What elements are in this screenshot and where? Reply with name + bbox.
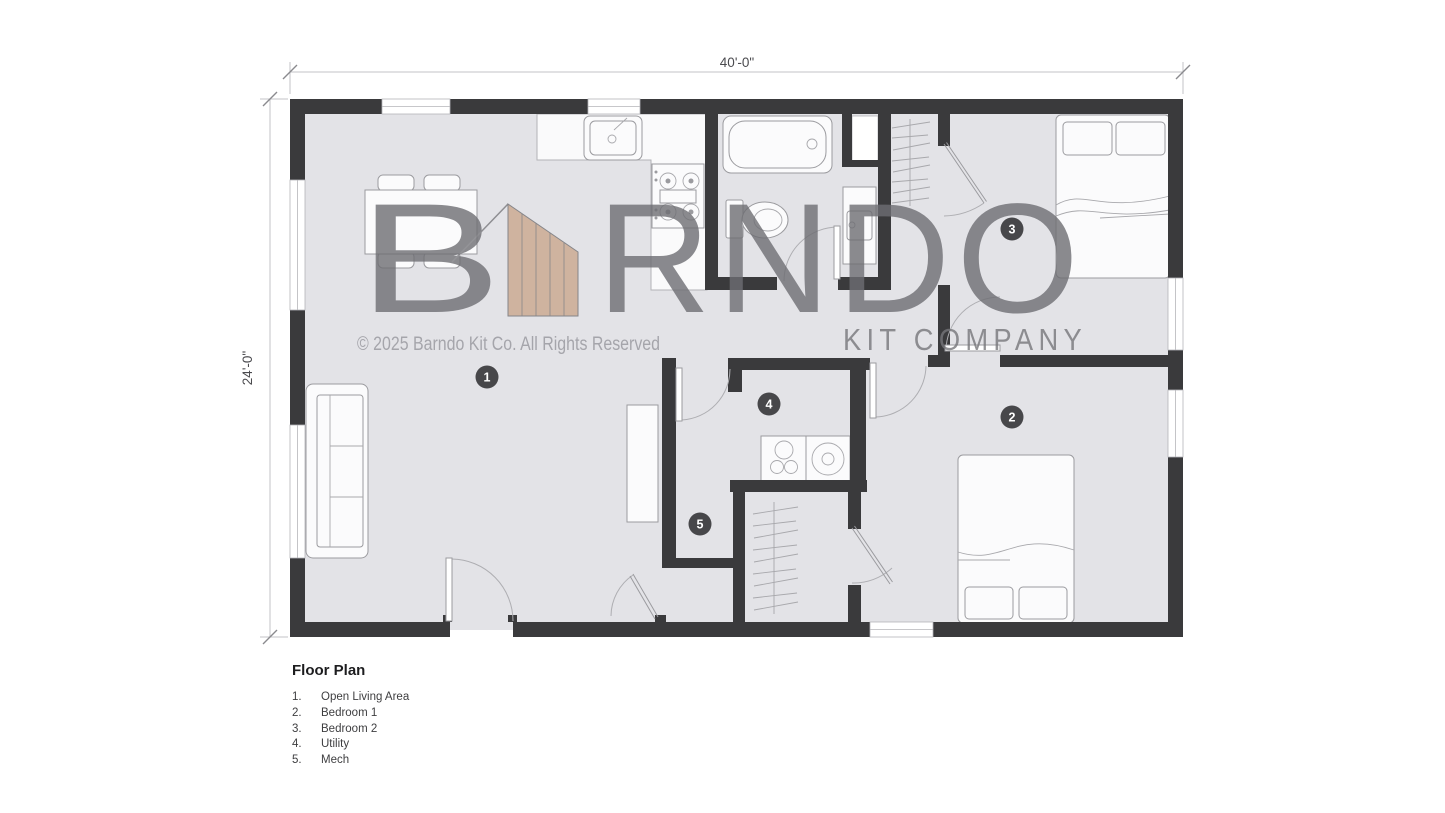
svg-text:2: 2 [1009, 411, 1016, 425]
legend-item-label: Mech [321, 753, 349, 769]
bathtub-icon [723, 116, 832, 173]
window-icon [1168, 278, 1183, 350]
sofa-icon [306, 384, 368, 558]
floor-plan-page: 40'-0" 24'-0" [0, 0, 1445, 813]
legend-item-number: 3. [292, 722, 321, 738]
legend-item: 5. Mech [292, 753, 409, 769]
legend-item-label: Open Living Area [321, 690, 409, 706]
pantry-cabinet-icon [627, 405, 658, 522]
legend-item-number: 1. [292, 690, 321, 706]
room-marker-2: 2 [1001, 406, 1024, 429]
legend-item-number: 2. [292, 706, 321, 722]
room-marker-3: 3 [1001, 218, 1024, 241]
legend: Floor Plan 1. Open Living Area 2. Bedroo… [292, 662, 409, 769]
legend-item: 3. Bedroom 2 [292, 722, 409, 738]
window-icon [382, 99, 450, 114]
legend-item-number: 5. [292, 753, 321, 769]
bed-icon-bedroom-1 [958, 455, 1074, 623]
window-icon [290, 180, 305, 310]
svg-text:5: 5 [697, 518, 704, 532]
linen-closet-icon [852, 116, 878, 162]
room-marker-5: 5 [689, 513, 712, 536]
room-marker-4: 4 [758, 393, 781, 416]
washer-dryer-icon [761, 436, 850, 482]
legend-title: Floor Plan [292, 662, 409, 679]
legend-item-number: 4. [292, 737, 321, 753]
floor-plan-drawing: 40'-0" 24'-0" [0, 0, 1445, 813]
width-dimension-label: 40'-0" [720, 55, 755, 70]
legend-item-label: Bedroom 2 [321, 722, 377, 738]
copyright-text: © 2025 Barndo Kit Co. All Rights Reserve… [357, 334, 660, 355]
svg-text:4: 4 [766, 398, 773, 412]
legend-item: 4. Utility [292, 737, 409, 753]
watermark-tagline: KIT COMPANY [843, 322, 1087, 357]
legend-item: 1. Open Living Area [292, 690, 409, 706]
legend-item-label: Utility [321, 737, 349, 753]
window-icon [588, 99, 640, 114]
room-marker-1: 1 [476, 366, 499, 389]
watermark-brand-prefix: B [358, 172, 510, 346]
svg-text:3: 3 [1009, 223, 1016, 237]
svg-text:1: 1 [484, 371, 491, 385]
watermark: B RNDO KIT COMPANY [358, 172, 1087, 357]
legend-item-label: Bedroom 1 [321, 706, 377, 722]
window-icon [290, 425, 305, 558]
legend-item: 2. Bedroom 1 [292, 706, 409, 722]
window-icon [1168, 390, 1183, 457]
height-dimension-label: 24'-0" [240, 351, 255, 386]
window-icon [870, 622, 933, 637]
watermark-brand-suffix: RNDO [597, 172, 1085, 346]
